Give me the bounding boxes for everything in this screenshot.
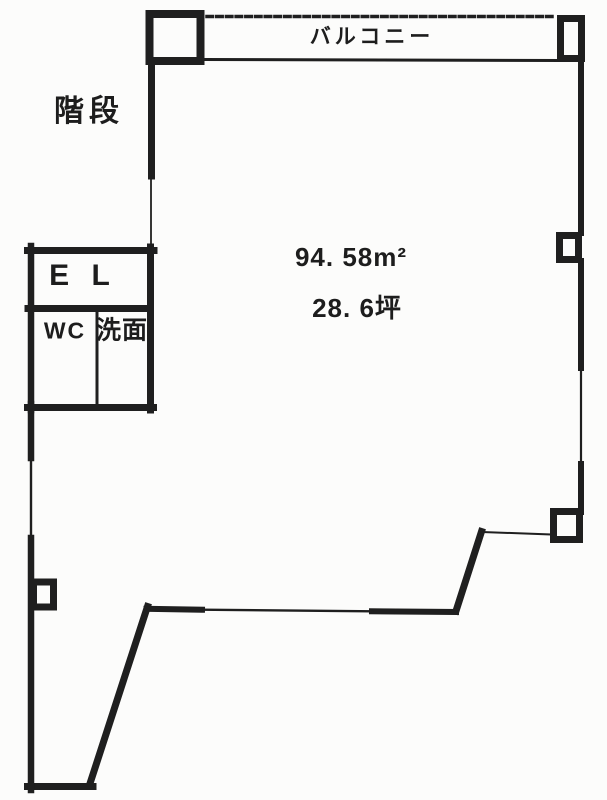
area-sqm-label: 94. 58m² <box>295 244 407 270</box>
elevator-label: E L <box>49 261 117 291</box>
pillar-top-right <box>561 19 582 59</box>
area-tsubo-label: 28. 6坪 <box>312 295 402 321</box>
pillar-left-small <box>34 582 54 607</box>
bottom-wall-right-thin <box>483 532 551 535</box>
washroom-label: 洗面 <box>96 319 148 344</box>
toilet-label: WC <box>44 320 86 343</box>
pillar-top-left <box>150 14 201 61</box>
pillar-bottom-right <box>554 512 580 540</box>
top-wall <box>205 60 560 61</box>
diagonal-wall-right <box>456 532 482 612</box>
bottom-wall-east <box>372 611 456 612</box>
pillar-mid-right <box>560 236 579 260</box>
stairs-label: 階段 <box>54 97 124 127</box>
bottom-wall-center <box>202 610 372 612</box>
diagonal-wall-left <box>90 607 148 786</box>
balcony-label: バルコニー <box>310 27 435 48</box>
bottom-wall-west <box>147 609 203 610</box>
floorplan-page: 階段 バルコニー 94. 58m² 28. 6坪 E L WC 洗面 <box>0 0 607 800</box>
